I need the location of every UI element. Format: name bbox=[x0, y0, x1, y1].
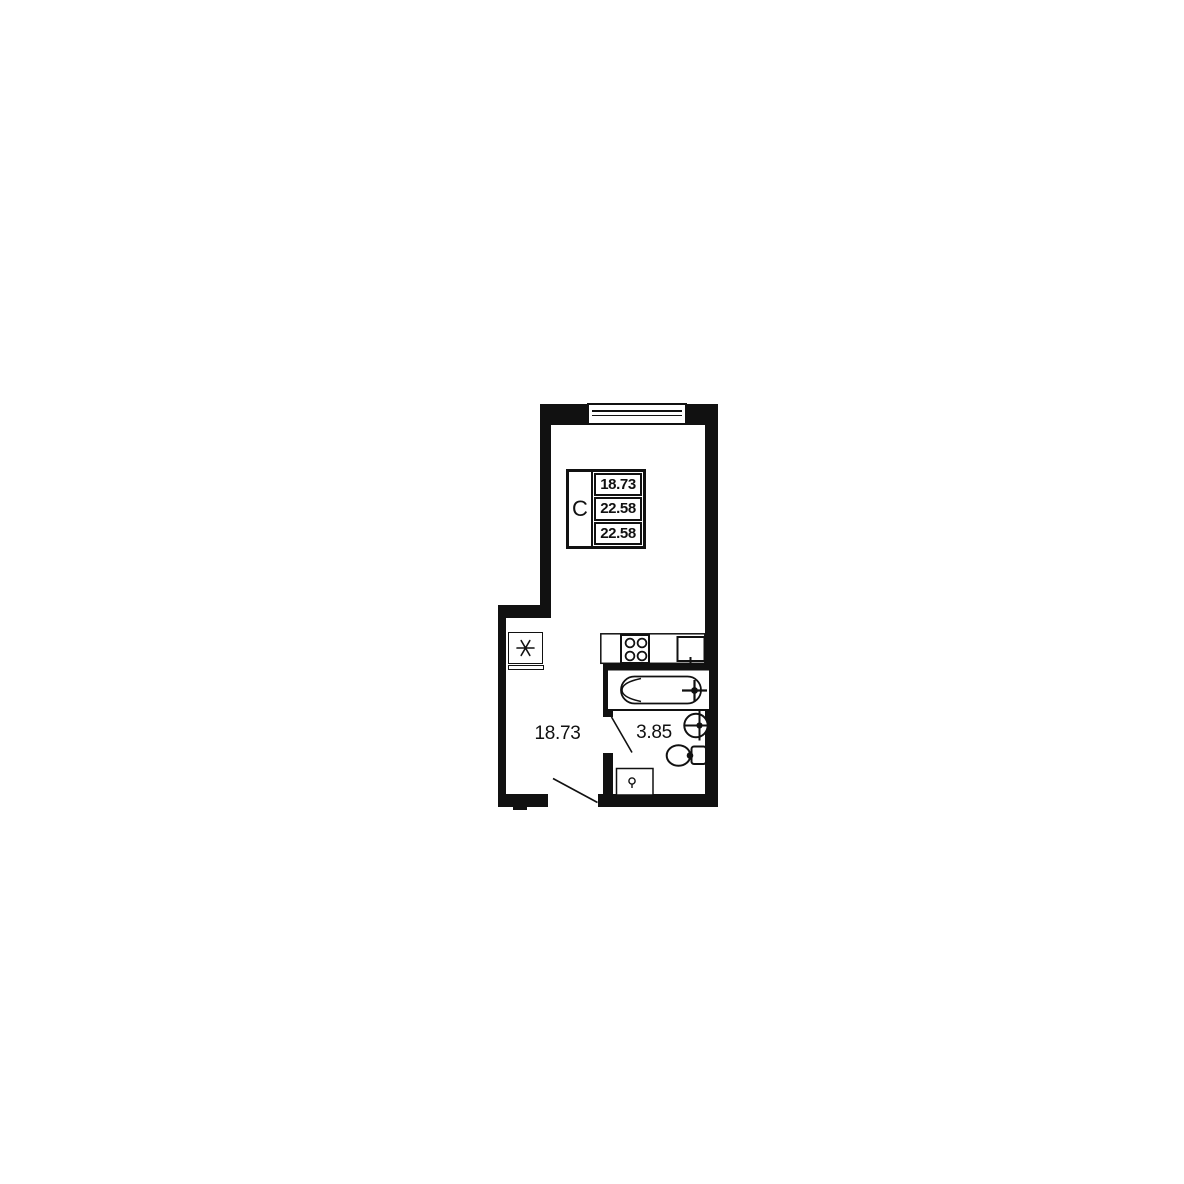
main-room-area-label: 18.73 bbox=[515, 723, 600, 745]
bathtub-icon bbox=[607, 670, 710, 711]
bathroom-area-label: 3.85 bbox=[621, 722, 687, 744]
unit-total-area-cell: 22.58 bbox=[594, 522, 642, 545]
vent-asterisk-icon bbox=[517, 641, 534, 656]
unit-type-cell: С bbox=[569, 472, 593, 546]
unit-areas-column: 18.73 22.58 22.58 bbox=[593, 472, 643, 546]
unit-info-box: С 18.73 22.58 22.58 bbox=[566, 469, 646, 549]
washing-machine-icon bbox=[617, 769, 654, 796]
entrance-door-swing bbox=[553, 779, 598, 803]
unit-type-label: С bbox=[572, 496, 588, 522]
toilet-icon bbox=[667, 745, 706, 766]
unit-area-cell: 22.58 bbox=[594, 497, 642, 520]
fixtures-layer bbox=[0, 0, 1184, 1184]
floor-plan: С 18.73 22.58 22.58 18.73 3.85 bbox=[0, 0, 1184, 1184]
kitchen-sink-icon bbox=[678, 637, 705, 664]
stove-icon bbox=[621, 635, 649, 663]
washbasin-icon bbox=[684, 711, 712, 741]
unit-living-area-cell: 18.73 bbox=[594, 473, 642, 496]
